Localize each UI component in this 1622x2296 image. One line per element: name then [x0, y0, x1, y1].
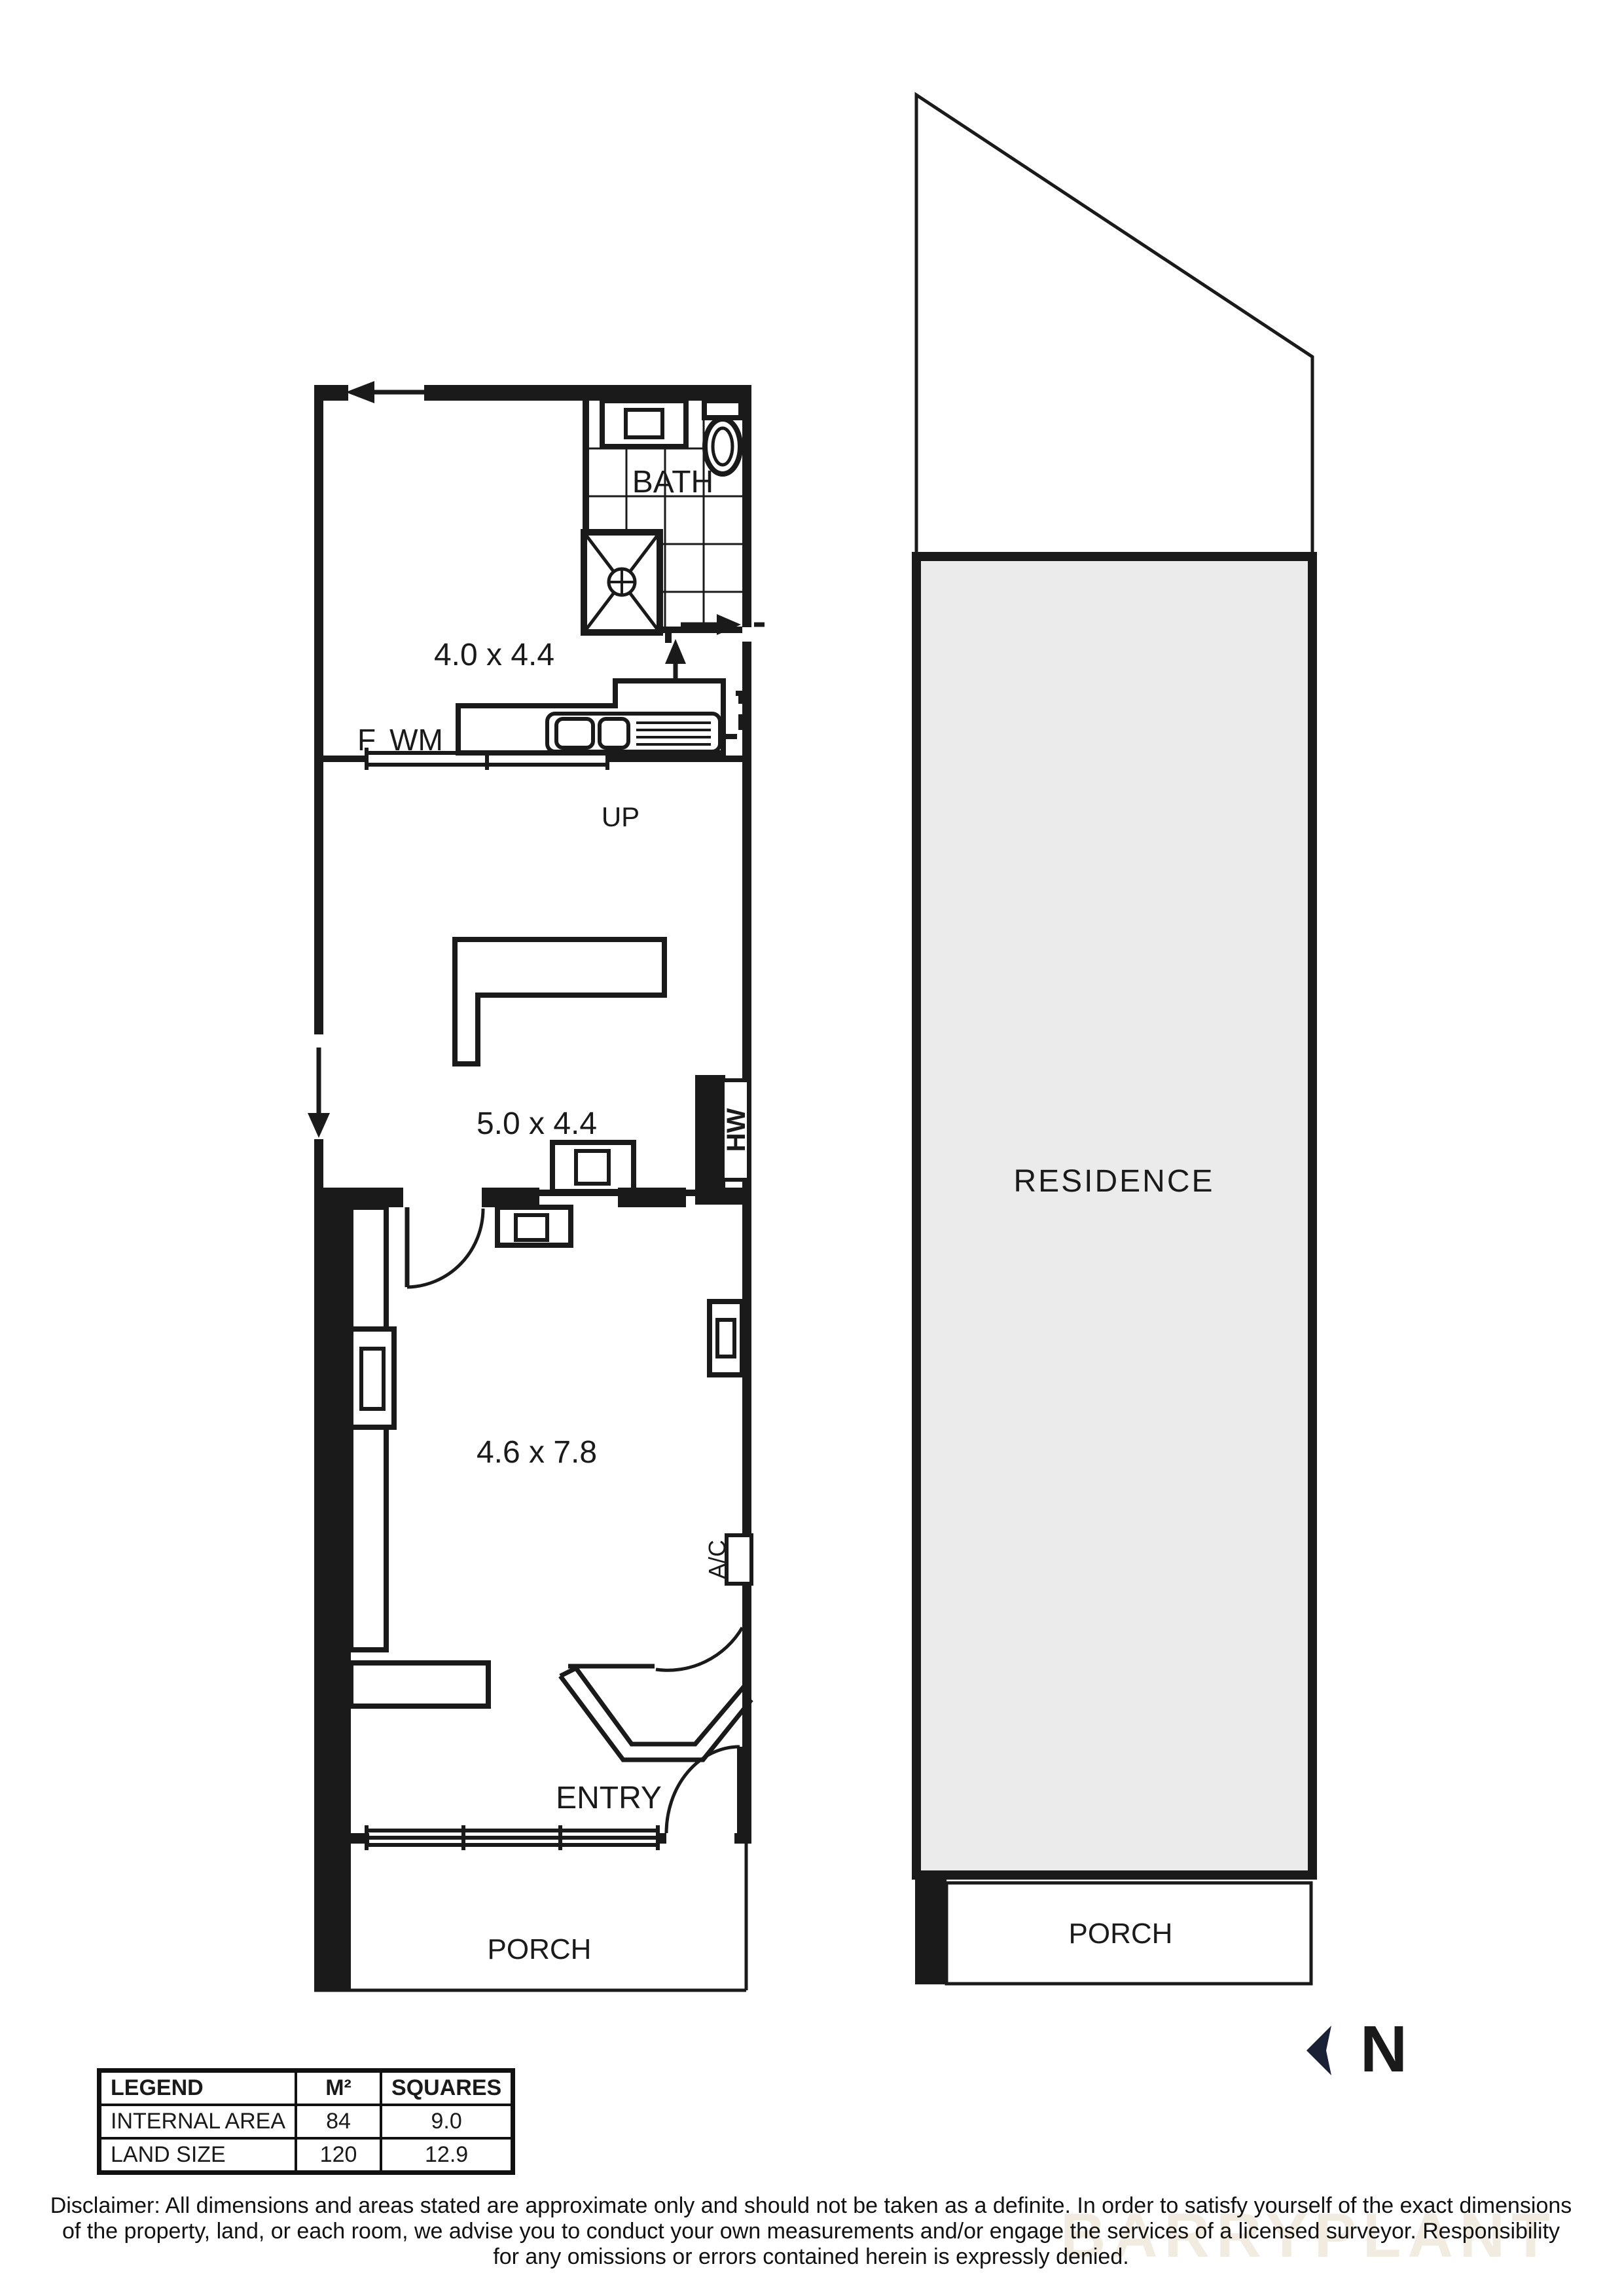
floorplan-page: BARRYPLANT: [0, 0, 1622, 2296]
internal-area-label: INTERNAL AREA: [99, 2105, 297, 2138]
land-size-m2: 120: [296, 2138, 381, 2173]
disclaimer-line-2: of the property, land, or each room, we …: [0, 2219, 1622, 2244]
exit-arrow-left-icon: [346, 381, 424, 403]
table-row: LAND SIZE 120 12.9: [99, 2138, 513, 2173]
plan-canvas: BATH 4.0 x 4.4 UP F WM 5.0 x 4.4 HW 4.6 …: [0, 0, 1622, 2296]
washing-machine-label: WM: [389, 723, 443, 757]
internal-door-icon: [407, 1207, 483, 1287]
m2-header: M²: [296, 2071, 381, 2105]
land-size-squares: 12.9: [381, 2138, 513, 2173]
north-label: N: [1360, 2013, 1407, 2086]
vanity-icon: [602, 401, 686, 446]
island-bench: [455, 939, 664, 1064]
shower-icon: [584, 532, 660, 632]
site-plan: RESIDENCE PORCH: [915, 95, 1312, 1984]
plan-porch-outline: [314, 1844, 746, 1990]
front-room-fireplace-icon: [351, 1329, 394, 1427]
land-size-label: LAND SIZE: [99, 2138, 297, 2173]
site-porch-label: PORCH: [1069, 1918, 1173, 1950]
side-entry-arrow-down-icon: [308, 1048, 330, 1138]
site-porch-wall: [915, 1870, 946, 1984]
middle-room-dims-label: 5.0 x 4.4: [477, 1106, 597, 1141]
bath-label: BATH: [632, 465, 713, 500]
internal-area-m2: 84: [296, 2105, 381, 2138]
up-label: UP: [602, 801, 640, 832]
entry-label: ENTRY: [556, 1781, 662, 1815]
front-window-icon: [367, 1825, 658, 1850]
internal-area-squares: 9.0: [381, 2105, 513, 2138]
kitchen-sink-icon: [547, 714, 720, 752]
middle-room-fireplace-icon: [552, 1142, 634, 1192]
disclaimer: Disclaimer: All dimensions and areas sta…: [0, 2193, 1622, 2270]
legend-header: LEGEND: [99, 2071, 297, 2105]
disclaimer-line-3: for any omissions or errors contained he…: [0, 2244, 1622, 2270]
middle-wall: [314, 1188, 742, 1207]
north-compass: N: [1307, 2013, 1407, 2086]
residence-label: RESIDENCE: [1013, 1164, 1214, 1199]
legend-table: LEGEND M² SQUARES INTERNAL AREA 84 9.0 L…: [97, 2068, 515, 2175]
squares-header: SQUARES: [381, 2071, 513, 2105]
legend-header-row: LEGEND M² SQUARES: [99, 2071, 513, 2105]
floor-plan: [308, 381, 765, 1990]
plan-porch-label: PORCH: [488, 1933, 592, 1965]
front-room-dims-label: 4.6 x 7.8: [477, 1435, 597, 1470]
upper-room-dims-label: 4.0 x 4.4: [434, 638, 554, 672]
residence-block: [916, 556, 1312, 1875]
toilet-icon: [704, 401, 741, 474]
side-window-icon: [710, 1302, 742, 1375]
hot-water-label: HW: [722, 1108, 751, 1152]
left-wall-joinery: [351, 1207, 488, 1706]
table-row: INTERNAL AREA 84 9.0: [99, 2105, 513, 2138]
fridge-label: F: [357, 723, 376, 757]
front-room-heater-icon: [497, 1207, 571, 1245]
disclaimer-line-1: Disclaimer: All dimensions and areas sta…: [0, 2193, 1622, 2219]
north-arrow-icon: [1307, 2026, 1331, 2075]
air-conditioner-label: A/C: [704, 1540, 730, 1579]
bay-window-icon: [560, 1628, 751, 1760]
